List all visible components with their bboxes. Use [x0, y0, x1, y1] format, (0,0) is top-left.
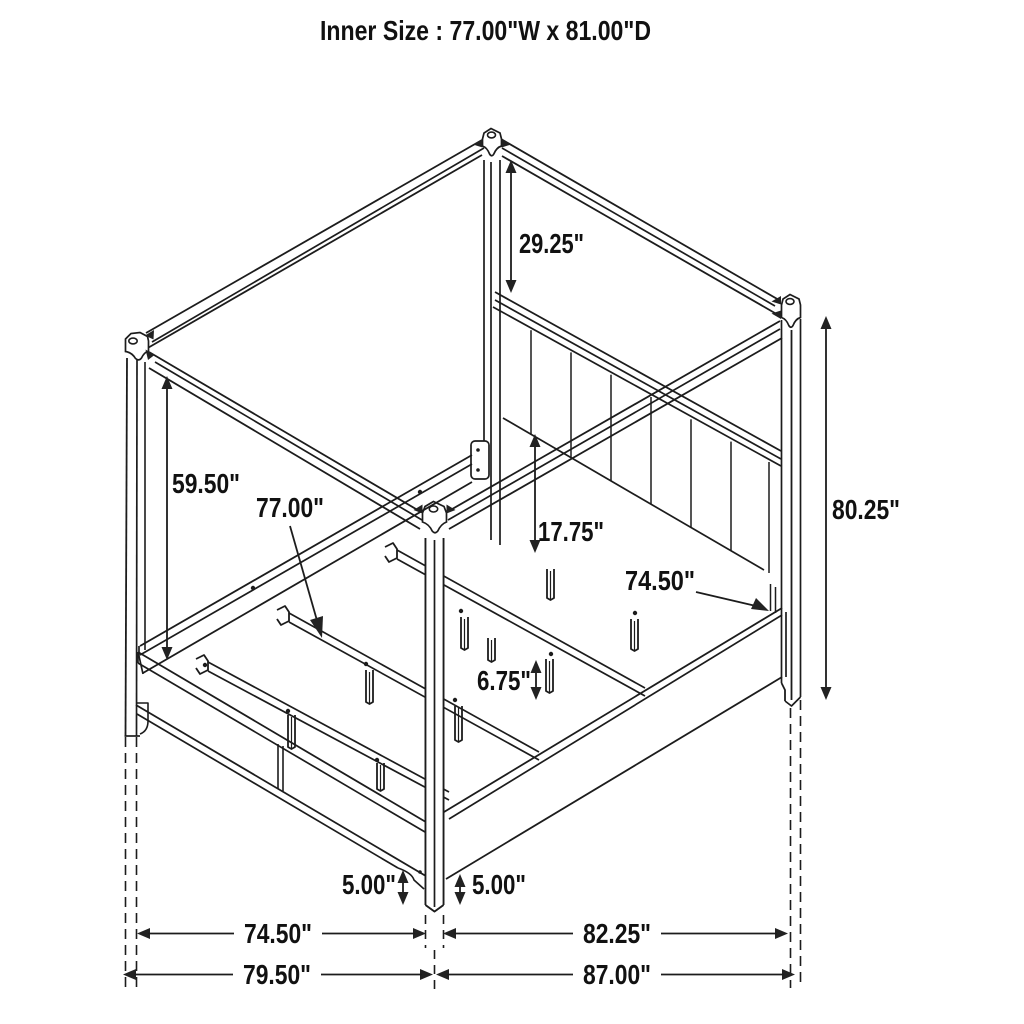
svg-text:5.00": 5.00"	[472, 869, 526, 900]
svg-text:59.50": 59.50"	[172, 468, 240, 499]
svg-text:Inner Size : 77.00"W x 81.00"D: Inner Size : 77.00"W x 81.00"D	[320, 15, 651, 46]
svg-text:80.25": 80.25"	[832, 494, 900, 525]
svg-text:5.00": 5.00"	[342, 869, 396, 900]
svg-text:77.00": 77.00"	[256, 492, 324, 523]
svg-text:29.25": 29.25"	[519, 228, 584, 259]
svg-text:6.75": 6.75"	[477, 665, 531, 696]
svg-text:74.50": 74.50"	[244, 918, 312, 949]
svg-text:82.25": 82.25"	[583, 918, 651, 949]
svg-text:74.50": 74.50"	[625, 565, 695, 596]
svg-text:87.00": 87.00"	[583, 959, 651, 990]
svg-text:79.50": 79.50"	[243, 959, 311, 990]
svg-text:17.75": 17.75"	[538, 516, 604, 547]
